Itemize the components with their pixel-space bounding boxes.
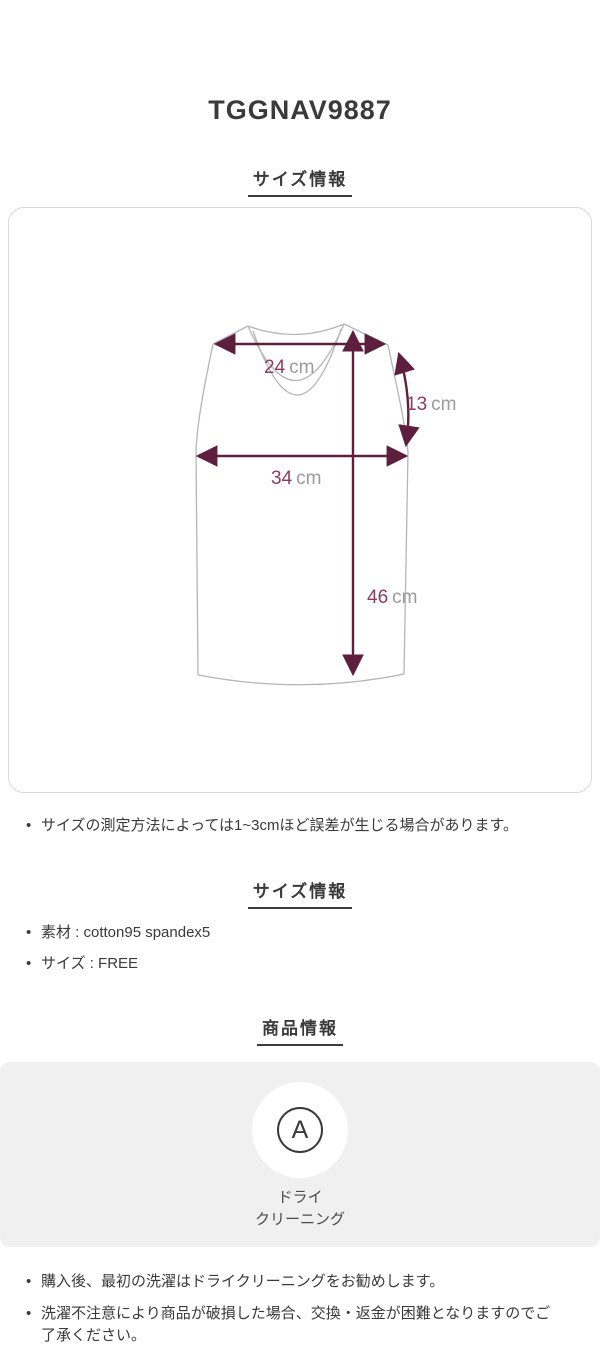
armhole-label: 13cm xyxy=(406,394,456,415)
garment-outline xyxy=(196,324,408,685)
size-note-list: サイズの測定方法によっては1~3cmほど誤差が生じる場合があります。 xyxy=(0,815,600,837)
measurement-lines xyxy=(198,332,408,674)
dry-cleaning-icon: A xyxy=(277,1107,323,1153)
care-label-line2: クリーニング xyxy=(0,1209,600,1231)
spec-list: 素材 : cotton95 spandex5 サイズ : FREE xyxy=(0,923,600,974)
chest-width-label: 34cm xyxy=(271,468,321,489)
page-title: TGGNAV9887 xyxy=(0,0,600,125)
spec-item-size: サイズ : FREE xyxy=(26,954,557,974)
care-label-line1: ドライ xyxy=(0,1187,600,1209)
size-diagram-card: 24cm 13cm 34cm 46cm xyxy=(8,207,592,793)
product-info-page: TGGNAV9887 サイズ情報 xyxy=(0,0,600,1357)
product-section: 商品情報 A ドライ クリーニング 購入後、最初の洗濯はドライクリーニングをお勧… xyxy=(0,1020,600,1347)
shoulder-width-label: 24cm xyxy=(264,357,314,378)
product-section-heading: 商品情報 xyxy=(257,1020,343,1046)
care-item-dry-cleaning: A ドライ クリーニング xyxy=(0,1082,600,1231)
size-diagram: 24cm 13cm 34cm 46cm xyxy=(9,208,591,792)
size-section-heading: サイズ情報 xyxy=(248,171,353,197)
spec-section-heading-wrap: サイズ情報 xyxy=(0,883,600,909)
care-circle-background: A xyxy=(252,1082,348,1178)
spec-section-heading: サイズ情報 xyxy=(248,883,353,909)
size-section-heading-wrap: サイズ情報 xyxy=(0,171,600,197)
spec-section: サイズ情報 素材 : cotton95 spandex5 サイズ : FREE xyxy=(0,883,600,974)
size-note: サイズの測定方法によっては1~3cmほど誤差が生じる場合があります。 xyxy=(26,815,557,837)
spec-item-material: 素材 : cotton95 spandex5 xyxy=(26,923,557,943)
product-section-heading-wrap: 商品情報 xyxy=(0,1020,600,1046)
product-note: 洗濯不注意により商品が破損した場合、交換・返金が困難となりますのでご了承ください… xyxy=(26,1303,557,1347)
product-note: 購入後、最初の洗濯はドライクリーニングをお勧めします。 xyxy=(26,1271,557,1293)
care-instructions-panel: A ドライ クリーニング xyxy=(0,1062,600,1247)
product-note-list: 購入後、最初の洗濯はドライクリーニングをお勧めします。 洗濯不注意により商品が破… xyxy=(0,1271,600,1347)
length-label: 46cm xyxy=(367,587,417,608)
size-section: サイズ情報 xyxy=(0,171,600,837)
care-label: ドライ クリーニング xyxy=(0,1187,600,1231)
